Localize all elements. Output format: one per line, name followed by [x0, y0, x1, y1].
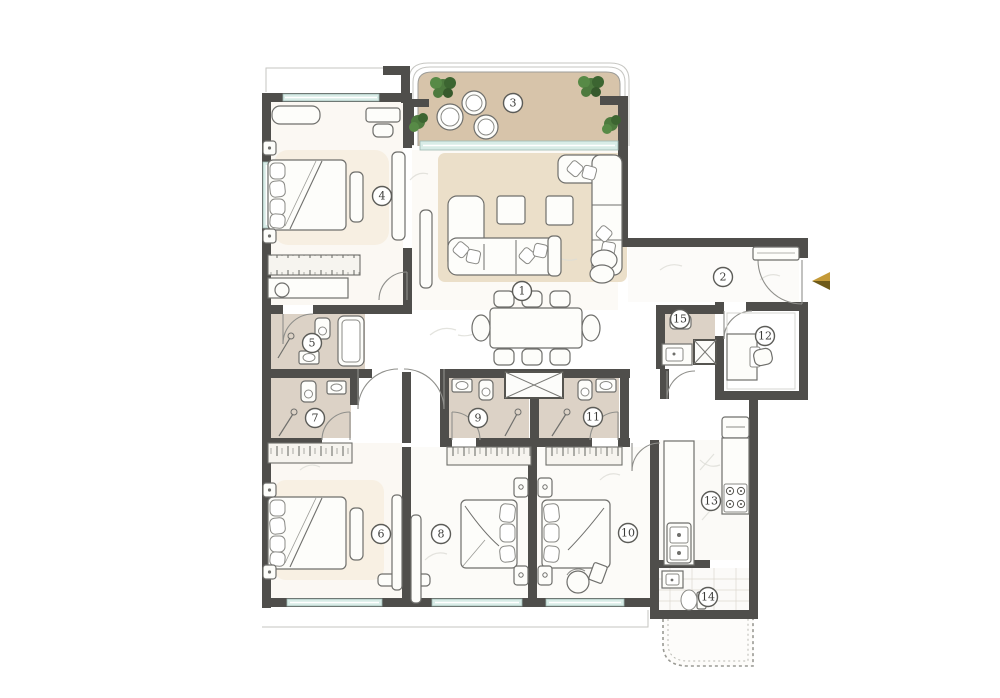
room-label-8: 8	[432, 525, 451, 544]
sliding-door-panel-left	[392, 495, 402, 590]
entry-arrow	[812, 272, 830, 290]
room-label-12: 12	[756, 327, 775, 346]
room-label-10: 10	[619, 524, 638, 543]
bedroom8-wardrobe	[447, 447, 531, 465]
svg-text:9: 9	[475, 412, 482, 425]
svg-text:3: 3	[510, 97, 517, 110]
svg-text:7: 7	[312, 412, 319, 425]
room-label-15: 15	[671, 310, 690, 329]
room-label-2: 2	[714, 268, 733, 287]
room-label-9: 9	[469, 409, 488, 428]
bedroom4-window	[283, 94, 379, 101]
svg-text:10: 10	[621, 527, 635, 540]
room-label-7: 7	[306, 409, 325, 428]
bedroom6-wardrobe	[268, 443, 352, 463]
bedroom10-wardrobe	[546, 447, 622, 465]
bedroom8-window	[432, 599, 522, 606]
entry-arrow-top	[812, 272, 830, 281]
svg-text:12: 12	[758, 330, 772, 343]
dry-balcony-outline	[663, 619, 753, 666]
shaft-powder	[694, 340, 716, 364]
bedroom4-stool	[275, 283, 289, 297]
svg-text:8: 8	[438, 528, 445, 541]
room-label-1: 1	[513, 282, 532, 301]
study12-furniture	[727, 313, 795, 389]
svg-text:2: 2	[720, 271, 727, 284]
room-label-13: 13	[702, 492, 721, 511]
room-label-3: 3	[504, 94, 523, 113]
room-label-4: 4	[373, 187, 392, 206]
svg-text:13: 13	[704, 495, 718, 508]
room-label-14: 14	[699, 588, 718, 607]
svg-text:1: 1	[519, 285, 526, 298]
foyer-console	[753, 247, 799, 260]
room-label-11: 11	[584, 408, 603, 427]
living-side-panel	[420, 210, 432, 288]
powder-door	[667, 371, 695, 399]
bedroom6-window	[287, 599, 382, 606]
bedroom10-window	[546, 599, 624, 606]
sliding-door-panel-right	[411, 515, 421, 603]
svg-text:11: 11	[586, 411, 600, 424]
svg-text:15: 15	[673, 313, 687, 326]
kitchen-hob	[724, 484, 747, 512]
shaft-between-bath9-11	[505, 372, 563, 398]
bedroom10-chair	[567, 571, 589, 593]
svg-text:4: 4	[379, 190, 386, 203]
bedroom4-wardrobe	[268, 255, 360, 275]
room-label-5: 5	[303, 334, 322, 353]
svg-text:14: 14	[701, 591, 715, 604]
floor-plan-stage: 1 2 3 4 5 6 7 8 9 10 11 12 13 14 15	[0, 0, 1000, 698]
floor-plan: 1 2 3 4 5 6 7 8 9 10 11 12 13 14 15	[0, 0, 1000, 698]
balcony-slider-window	[420, 141, 618, 150]
entry-arrow-bottom	[812, 281, 830, 290]
room-label-6: 6	[372, 525, 391, 544]
svg-text:6: 6	[378, 528, 385, 541]
svg-text:5: 5	[309, 337, 316, 350]
